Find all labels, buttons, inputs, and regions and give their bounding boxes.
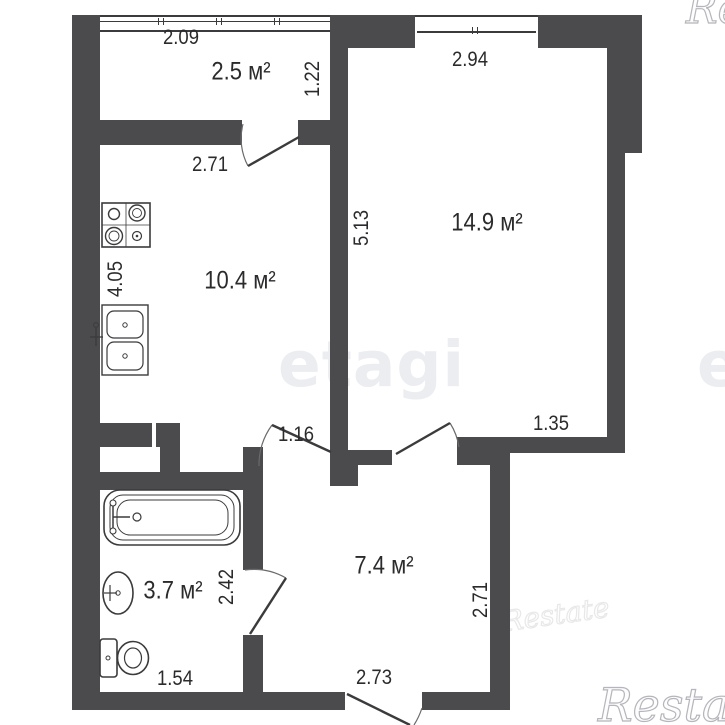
wall-slit <box>152 423 156 447</box>
wall-hall-right <box>490 453 510 710</box>
restate-watermark-top: Restate <box>686 0 725 33</box>
dim-bathroom-depth: 2.42 <box>215 569 239 605</box>
wall-hall-nub <box>330 465 358 486</box>
restate-watermark-faint: Restate <box>500 591 611 639</box>
area-label-livingroom: 14.9 м² <box>451 209 522 238</box>
etagi-watermark: etagi <box>278 328 465 401</box>
dim-hall-opening: 1.16 <box>278 423 314 447</box>
wall-right-upper <box>607 48 642 153</box>
window-glass-line <box>100 21 330 22</box>
wall-right-lower <box>607 153 625 453</box>
washbasin-icon <box>103 572 133 614</box>
area-label-bathroom: 3.7 м² <box>143 577 202 606</box>
toilet-icon <box>100 639 149 677</box>
dim-kitchen-depth: 4.05 <box>104 261 128 297</box>
etagi-watermark-edge: etagi <box>697 328 725 401</box>
bathtub-icon <box>104 490 240 545</box>
area-label-balcony: 2.5 м² <box>211 58 270 87</box>
livingroom-window <box>415 15 538 50</box>
floor-plan: etagi etagi Restate Restate Restate <box>0 0 725 725</box>
area-label-kitchen: 10.4 м² <box>204 267 275 296</box>
wall-balcony-divider-left <box>100 120 242 145</box>
window-tick <box>158 18 164 25</box>
dim-bathroom-width: 1.54 <box>157 667 193 691</box>
dim-kitchen-width: 2.71 <box>192 153 228 177</box>
wall-bathroom-top <box>100 472 245 490</box>
bathroom-door <box>245 569 286 634</box>
wall-kitchen-living-divider <box>330 15 348 465</box>
dim-balcony-depth: 1.22 <box>301 61 325 97</box>
dim-living-inner: 1.35 <box>533 412 569 436</box>
balcony-door <box>241 124 299 166</box>
wall-livingroom-bottom <box>457 437 625 453</box>
window-tick <box>216 18 222 25</box>
area-label-hallway: 7.4 м² <box>354 552 413 581</box>
wall-kitchen-stub <box>160 447 180 472</box>
dim-living-depth: 5.13 <box>350 210 374 246</box>
window-tick <box>274 18 280 25</box>
restate-watermark: Restate <box>598 678 725 725</box>
wall-hall-topleft <box>330 450 392 465</box>
balcony-window <box>100 15 330 32</box>
wall-bottom-outer <box>72 692 510 710</box>
dim-hall-depth: 2.71 <box>469 582 493 618</box>
entrance-door-opening <box>345 692 422 710</box>
wall-left-outer <box>72 15 100 710</box>
dim-living-width: 2.94 <box>452 48 488 72</box>
stove-icon <box>102 203 150 247</box>
wall-bathroom-right-lower <box>243 635 263 692</box>
window-tick <box>472 27 478 34</box>
dim-balcony-width: 2.09 <box>163 26 199 50</box>
wall-kitchen-bottom <box>100 423 180 447</box>
wall-balcony-divider-right <box>298 120 330 145</box>
dim-hall-width: 2.73 <box>356 666 392 690</box>
livingroom-door <box>396 423 459 454</box>
wall-bathroom-right-upper <box>243 447 263 570</box>
